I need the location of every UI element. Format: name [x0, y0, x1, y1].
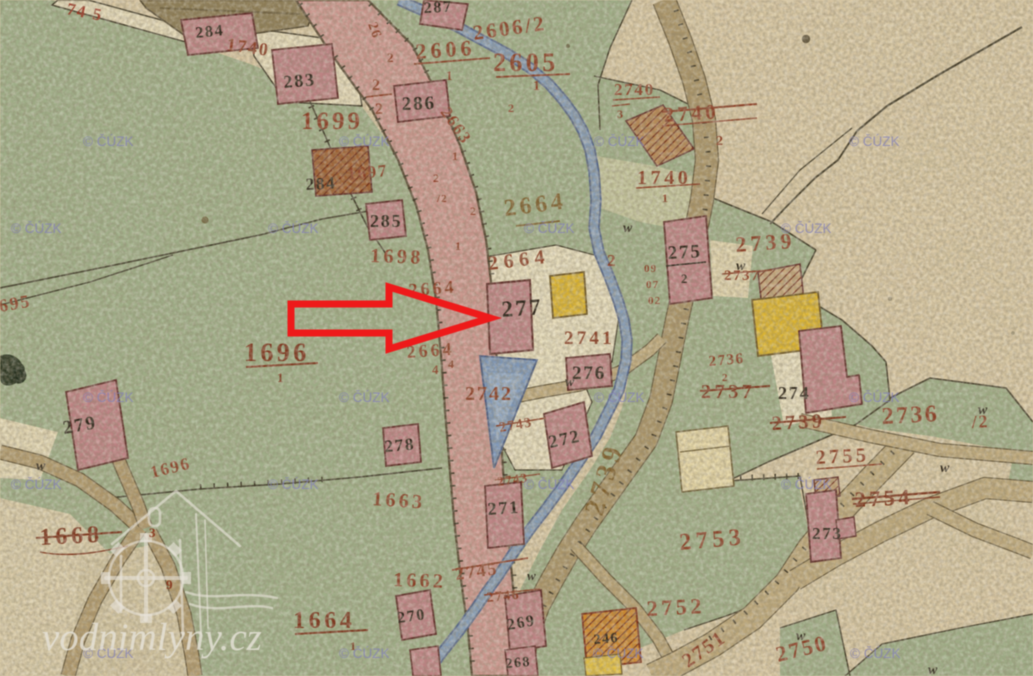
svg-text:© ČÚZK: © ČÚZK [83, 134, 133, 149]
svg-text:© ČÚZK: © ČÚZK [524, 221, 574, 236]
svg-text:© ČÚZK: © ČÚZK [849, 390, 899, 405]
svg-text:3: 3 [149, 525, 157, 540]
svg-text:© ČÚZK: © ČÚZK [593, 646, 643, 661]
svg-text:© ČÚZK: © ČÚZK [11, 221, 61, 236]
svg-text:© ČÚZK: © ČÚZK [849, 134, 899, 149]
svg-text:© ČÚZK: © ČÚZK [11, 477, 61, 492]
svg-text:© ČÚZK: © ČÚZK [524, 477, 574, 492]
svg-text:© ČÚZK: © ČÚZK [83, 390, 133, 405]
svg-text:vodnimlyny.cz: vodnimlyny.cz [42, 616, 262, 659]
svg-text:© ČÚZK: © ČÚZK [339, 134, 389, 149]
svg-text:© ČÚZK: © ČÚZK [594, 390, 644, 405]
svg-text:© ČÚZK: © ČÚZK [781, 477, 831, 492]
svg-text:9: 9 [166, 577, 174, 592]
svg-text:© ČÚZK: © ČÚZK [339, 390, 389, 405]
svg-text:© ČÚZK: © ČÚZK [268, 221, 318, 236]
svg-text:© ČÚZK: © ČÚZK [850, 646, 900, 661]
svg-text:© ČÚZK: © ČÚZK [781, 221, 831, 236]
svg-text:© ČÚZK: © ČÚZK [268, 477, 318, 492]
svg-text:© ČÚZK: © ČÚZK [339, 646, 389, 661]
svg-text:© ČÚZK: © ČÚZK [594, 134, 644, 149]
